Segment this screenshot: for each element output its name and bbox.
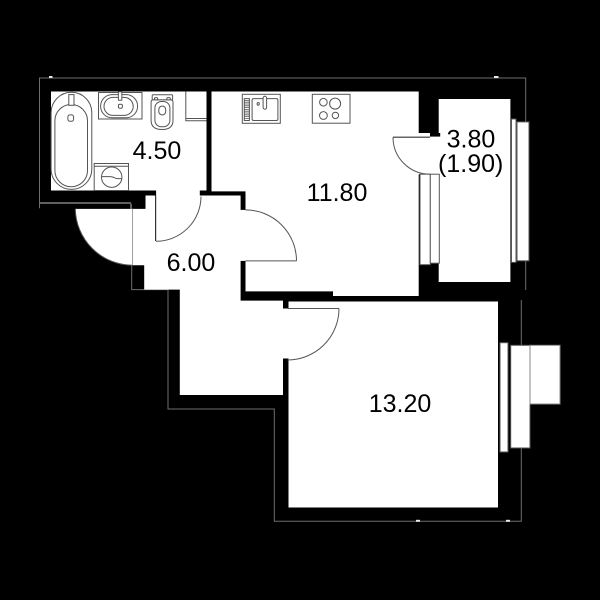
svg-text:4.50: 4.50 <box>133 137 182 165</box>
svg-text:11.80: 11.80 <box>307 179 368 207</box>
svg-text:(1.90): (1.90) <box>438 150 503 178</box>
svg-text:6.00: 6.00 <box>167 249 216 277</box>
svg-text:13.20: 13.20 <box>369 390 432 418</box>
